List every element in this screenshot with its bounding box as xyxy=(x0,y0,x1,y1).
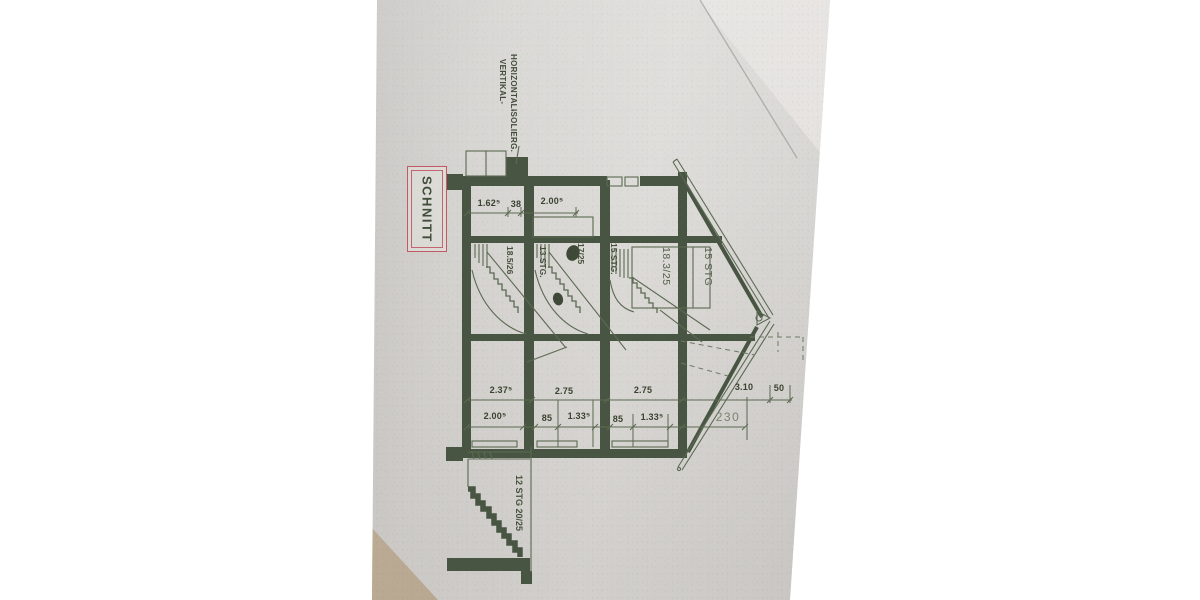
dim-detail-1: 2.00⁵ xyxy=(484,411,507,422)
stair-label-basement: 12 STG 20/25 xyxy=(513,475,524,531)
dim-top-1: 1.62⁵ xyxy=(478,198,501,209)
stair2-ratio: 17/25 xyxy=(575,243,586,275)
dim-top-2: 38 xyxy=(511,199,521,210)
stair-label-flight2: 15 STG. 17/25 xyxy=(564,243,641,275)
stair-label-flight1: 13 STG. 18.5/26 xyxy=(493,246,570,278)
insulation-note-line2: VERTIKAL- xyxy=(498,59,507,104)
table-surface xyxy=(372,0,452,600)
dim-width-2: 2.75 xyxy=(555,386,573,397)
dim-detail-3: 1.33⁵ xyxy=(568,411,591,422)
stair3-ratio: 18.3/25 xyxy=(659,247,673,286)
plan-photo xyxy=(372,0,832,600)
dim-width-5: 50 xyxy=(774,383,784,394)
dim-detail-5: 1.33⁵ xyxy=(641,412,664,423)
insulation-note-line3: ISOLIERG. xyxy=(509,109,518,152)
dim-top-3: 2.00⁵ xyxy=(541,196,564,207)
stair3-count: 15 STG xyxy=(701,247,715,286)
stair1-count: 13 STG. xyxy=(537,246,548,278)
dim-detail-2: 85 xyxy=(542,413,552,424)
stair2-count: 15 STG. xyxy=(608,243,619,275)
section-title-inner-frame: SCHNITT xyxy=(411,170,443,248)
insulation-note-line1: HORIZONTAL- xyxy=(509,54,518,112)
stair1-ratio: 18.5/26 xyxy=(504,246,515,278)
dim-detail-4: 85 xyxy=(613,414,623,425)
section-title: SCHNITT xyxy=(420,176,435,243)
dim-width-4: 3.10 xyxy=(735,382,753,393)
dim-width-1: 2.37⁵ xyxy=(490,385,513,396)
scan-noise xyxy=(372,0,832,600)
stair-label-flight3: 15 STG 18.3/25 xyxy=(645,247,743,286)
section-title-box: SCHNITT xyxy=(407,166,447,252)
dim-width-3: 2.75 xyxy=(634,385,652,396)
photo-shading xyxy=(372,0,832,600)
paper-corner-fold xyxy=(372,0,832,170)
dim-roof-width: 230 xyxy=(716,410,741,424)
